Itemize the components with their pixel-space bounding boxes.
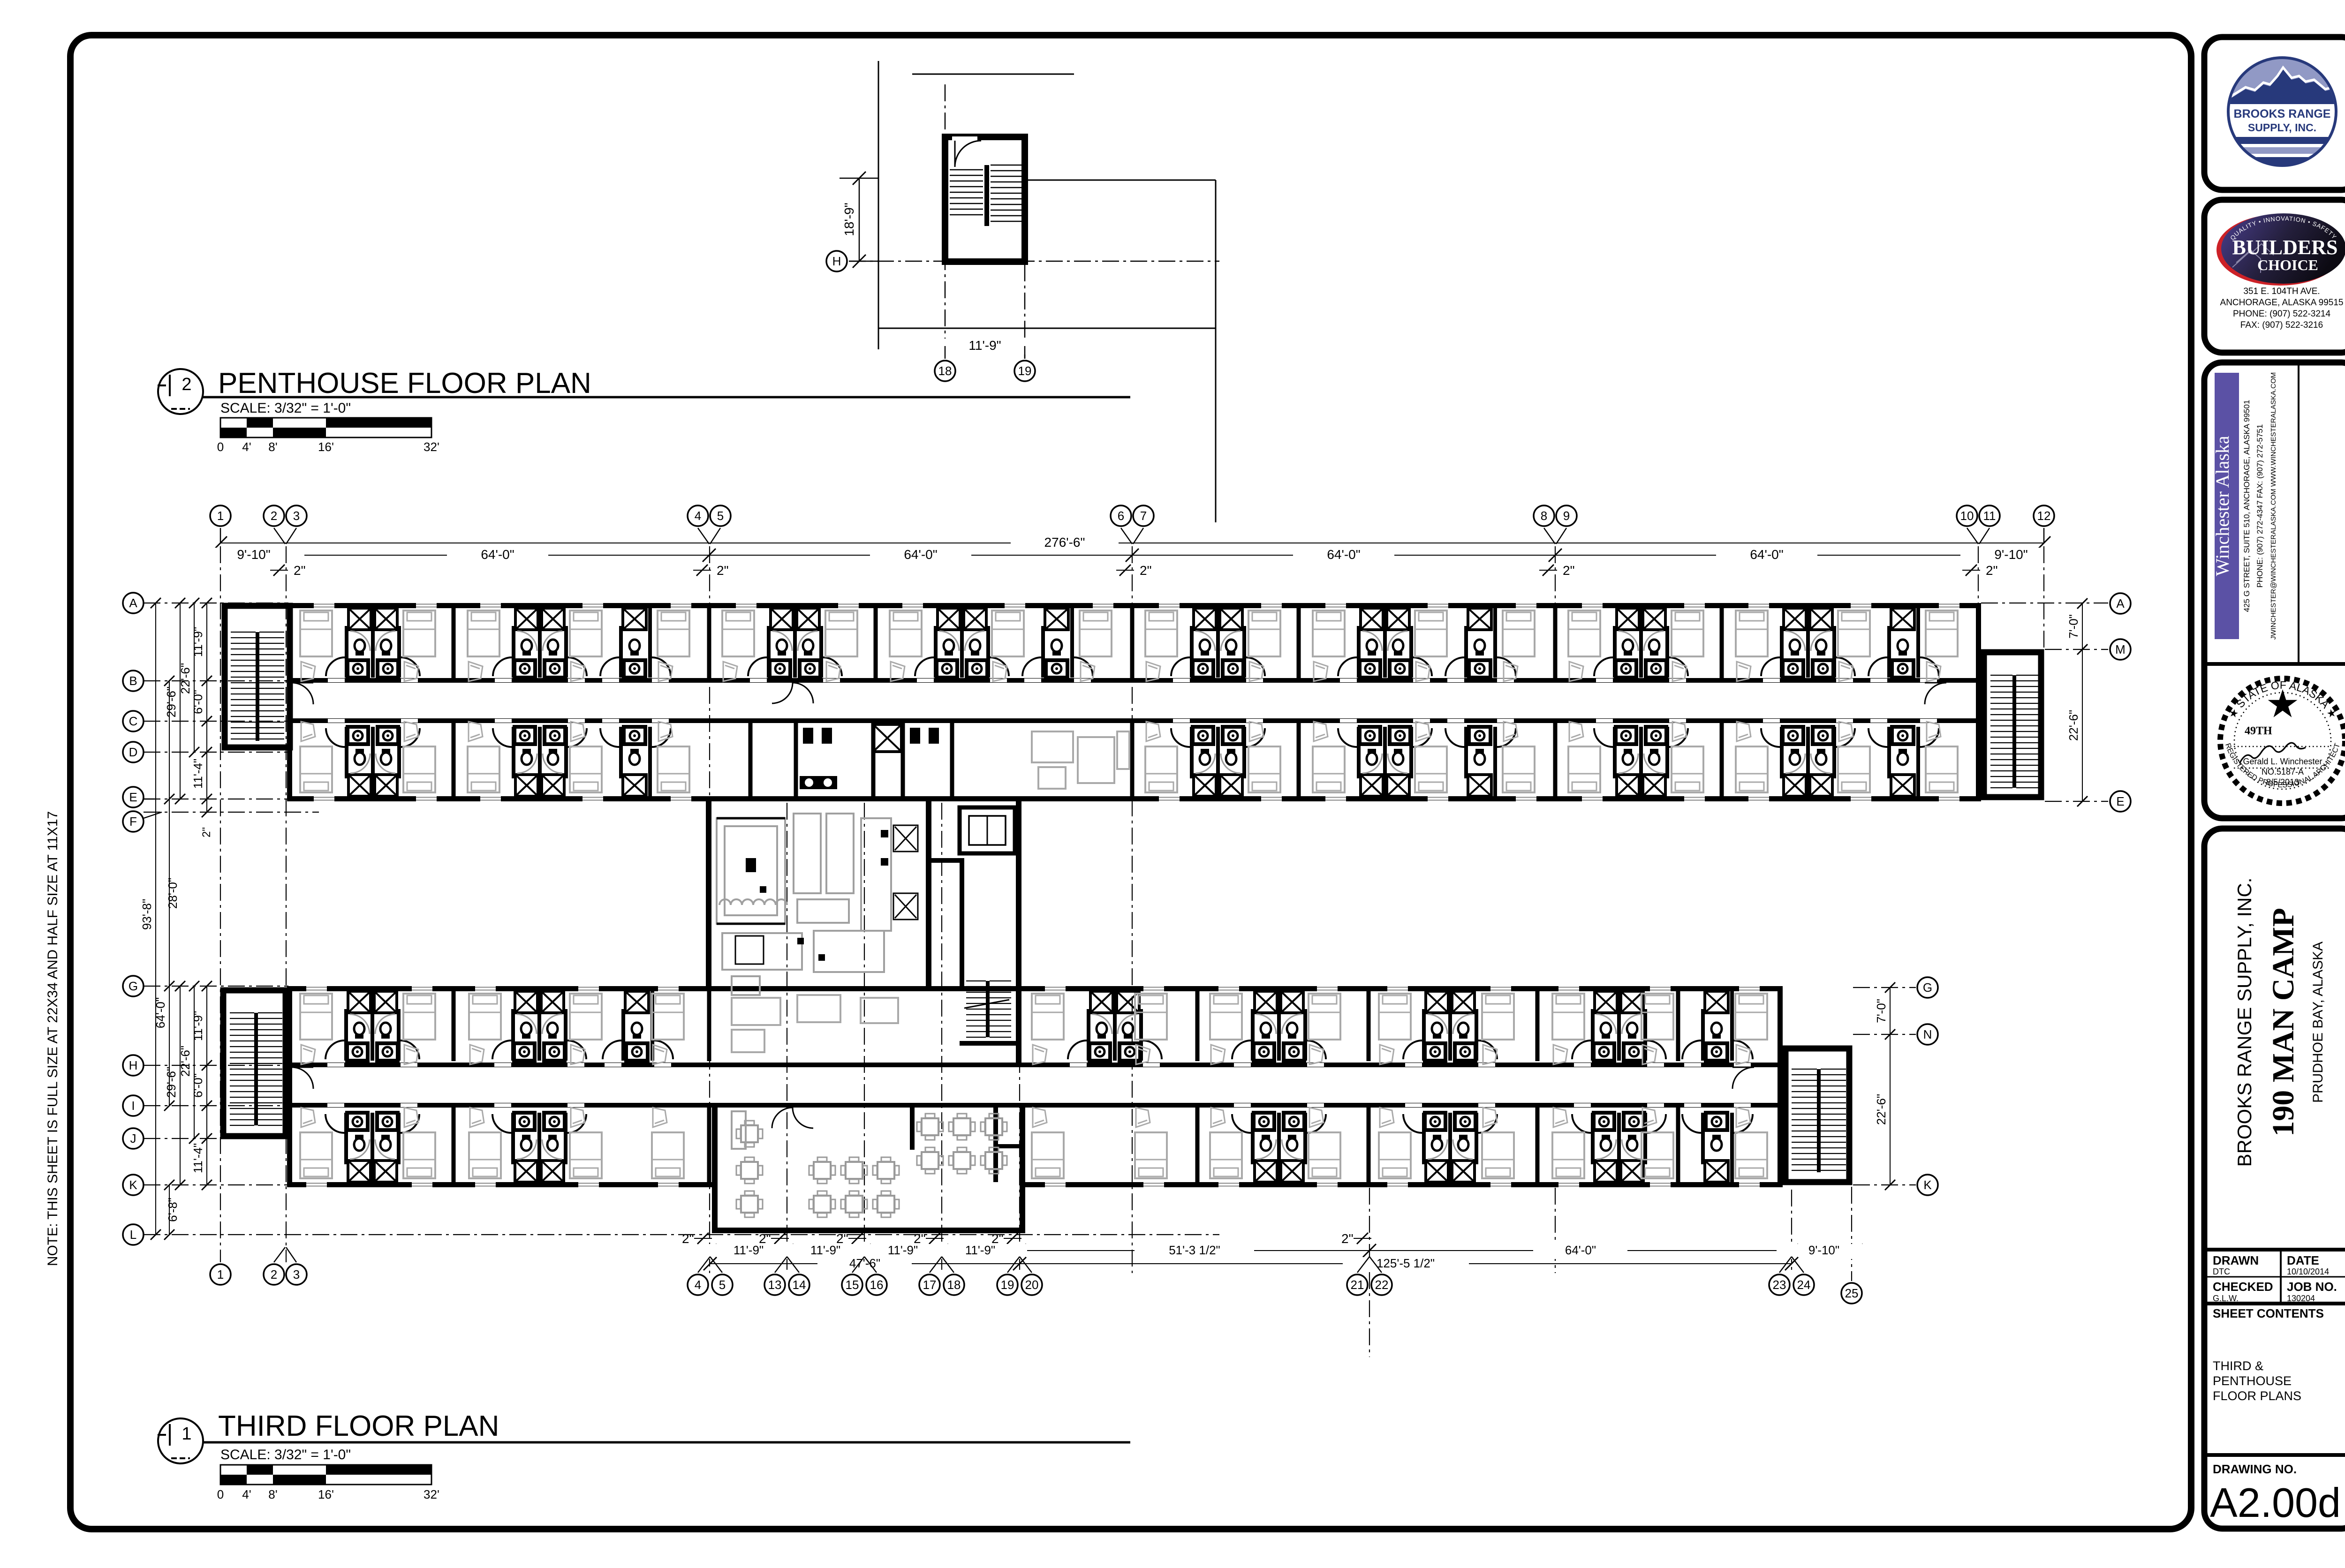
svg-text:11: 11 <box>1983 509 1996 523</box>
svg-text:M: M <box>2115 642 2126 656</box>
svg-text:7'-0": 7'-0" <box>2066 614 2080 639</box>
svg-text:BROOKS RANGE: BROOKS RANGE <box>2234 107 2331 121</box>
svg-text:2": 2" <box>1140 563 1152 578</box>
svg-text:FLOOR PLANS: FLOOR PLANS <box>2213 1389 2301 1403</box>
svg-text:2": 2" <box>1563 563 1575 578</box>
svg-text:17: 17 <box>923 1278 937 1292</box>
svg-text:10/10/2014: 10/10/2014 <box>2287 1267 2329 1276</box>
svg-text:64'-0": 64'-0" <box>1750 547 1783 562</box>
svg-text:125'-5 1/2": 125'-5 1/2" <box>1377 1256 1435 1270</box>
svg-text:11'-4": 11'-4" <box>191 1143 205 1173</box>
svg-text:E: E <box>2116 794 2124 808</box>
svg-text:BUILDERS: BUILDERS <box>2232 236 2338 259</box>
svg-text:Winchester Alaska: Winchester Alaska <box>2212 436 2233 576</box>
svg-text:22'-6": 22'-6" <box>1874 1094 1888 1125</box>
svg-text:1: 1 <box>182 1424 191 1444</box>
svg-text:23: 23 <box>1773 1278 1786 1292</box>
svg-text:32': 32' <box>424 1487 439 1501</box>
svg-text:PENTHOUSE FLOOR PLAN: PENTHOUSE FLOOR PLAN <box>218 367 591 400</box>
svg-text:49TH: 49TH <box>2245 725 2272 737</box>
svg-text:3: 3 <box>293 1267 300 1282</box>
svg-text:E: E <box>129 790 137 804</box>
svg-text:DTC: DTC <box>2213 1267 2230 1276</box>
svg-text:15: 15 <box>846 1278 859 1292</box>
svg-text:SCALE: 3/32" = 1'-0": SCALE: 3/32" = 1'-0" <box>220 1447 351 1462</box>
svg-text:29'-6": 29'-6" <box>164 686 178 717</box>
svg-text:PHONE: (907) 272-4347 F: PHONE: (907) 272-4347 FAX: (907) 272-575… <box>2255 424 2264 588</box>
svg-text:SCALE: 3/32" = 1'-0": SCALE: 3/32" = 1'-0" <box>220 400 351 416</box>
svg-text:CHOICE: CHOICE <box>2257 256 2318 273</box>
svg-text:64'-0": 64'-0" <box>1565 1243 1596 1257</box>
svg-text:2: 2 <box>271 509 277 523</box>
svg-text:8': 8' <box>268 1487 277 1501</box>
svg-text:THIRD &: THIRD & <box>2213 1359 2263 1373</box>
svg-text:51'-3 1/2": 51'-3 1/2" <box>1169 1243 1220 1257</box>
svg-text:20: 20 <box>1025 1278 1039 1292</box>
svg-text:G: G <box>129 979 138 993</box>
svg-text:4: 4 <box>695 1278 701 1292</box>
svg-text:19: 19 <box>1018 364 1032 378</box>
svg-text:0: 0 <box>217 1487 224 1501</box>
svg-text:64'-0": 64'-0" <box>1327 547 1360 562</box>
svg-text:PRUDHOE BAY, ALASKA: PRUDHOE BAY, ALASKA <box>2310 942 2326 1103</box>
svg-text:64'-0": 64'-0" <box>481 547 514 562</box>
svg-text:BROOKS RANGE SUPPLY, INC.: BROOKS RANGE SUPPLY, INC. <box>2233 878 2255 1167</box>
svg-text:JWINCHESTER@WINCHESTERALASKA.C: JWINCHESTER@WINCHESTERALASKA.COM WWW.WIN… <box>2269 372 2277 640</box>
svg-text:ANCHORAGE, ALASKA 99515: ANCHORAGE, ALASKA 99515 <box>2220 298 2344 308</box>
svg-text:19: 19 <box>1001 1278 1014 1292</box>
svg-text:8: 8 <box>1541 509 1547 523</box>
svg-text:11'-9": 11'-9" <box>191 1011 205 1041</box>
svg-text:130204: 130204 <box>2287 1294 2315 1303</box>
svg-text:32': 32' <box>424 440 439 454</box>
svg-text:25: 25 <box>1845 1286 1859 1300</box>
svg-text:9: 9 <box>1563 509 1570 523</box>
svg-text:18: 18 <box>938 364 952 378</box>
svg-text:F: F <box>129 814 137 829</box>
svg-text:G: G <box>1923 980 1932 995</box>
svg-text:DRAWING NO.: DRAWING NO. <box>2213 1462 2297 1476</box>
svg-text:6: 6 <box>1118 509 1124 523</box>
svg-text:J: J <box>130 1131 136 1146</box>
svg-text:16': 16' <box>318 1487 334 1501</box>
svg-text:A2.00d: A2.00d <box>2210 1479 2341 1526</box>
svg-text:12: 12 <box>2037 509 2051 523</box>
svg-text:11'-9": 11'-9" <box>888 1243 918 1257</box>
svg-text:SUPPLY, INC.: SUPPLY, INC. <box>2248 121 2316 134</box>
svg-text:1: 1 <box>217 509 224 523</box>
svg-text:4': 4' <box>242 440 251 454</box>
svg-text:K: K <box>1923 1178 1932 1192</box>
svg-text:SHEET CONTENTS: SHEET CONTENTS <box>2213 1306 2324 1320</box>
svg-text:28'-0": 28'-0" <box>166 878 180 909</box>
svg-text:11'-9": 11'-9" <box>965 1243 995 1257</box>
svg-text:4: 4 <box>695 509 701 523</box>
svg-text:FAX: (907) 522-3216: FAX: (907) 522-3216 <box>2240 320 2323 330</box>
svg-text:9'-10": 9'-10" <box>237 547 270 562</box>
svg-text:CHECKED: CHECKED <box>2213 1280 2273 1294</box>
svg-text:13: 13 <box>768 1278 782 1292</box>
svg-text:6'-0": 6'-0" <box>191 690 205 714</box>
svg-text:22'-6": 22'-6" <box>2066 710 2080 741</box>
svg-text:6'-8": 6'-8" <box>166 1198 180 1222</box>
svg-text:29'-6": 29'-6" <box>164 1067 178 1098</box>
svg-text:JOB NO.: JOB NO. <box>2287 1280 2337 1294</box>
svg-text:1: 1 <box>217 1267 224 1282</box>
svg-text:351 E. 104TH AVE.: 351 E. 104TH AVE. <box>2243 286 2320 296</box>
svg-text:C: C <box>129 714 138 728</box>
svg-text:14: 14 <box>793 1278 806 1292</box>
svg-text:11'-9": 11'-9" <box>191 627 205 657</box>
svg-text:Gerald L. Winchester: Gerald L. Winchester <box>2243 757 2322 766</box>
svg-text:NO.5187-A: NO.5187-A <box>2262 767 2304 776</box>
svg-text:G.L.W.: G.L.W. <box>2213 1294 2239 1303</box>
svg-text:L: L <box>130 1228 136 1242</box>
svg-text:18: 18 <box>947 1278 961 1292</box>
svg-text:9'-10": 9'-10" <box>1808 1243 1839 1257</box>
svg-text:PHONE: (907) 522-3214: PHONE: (907) 522-3214 <box>2233 309 2330 319</box>
svg-text:K: K <box>129 1178 137 1192</box>
svg-text:H: H <box>129 1058 138 1072</box>
svg-text:2": 2" <box>1986 563 1998 578</box>
svg-text:2": 2" <box>294 563 306 578</box>
svg-text:2": 2" <box>1341 1231 1354 1246</box>
svg-text:2: 2 <box>182 375 191 394</box>
svg-text:DATE: DATE <box>2287 1253 2319 1267</box>
svg-text:8': 8' <box>268 440 277 454</box>
svg-text:D: D <box>129 745 138 759</box>
svg-text:DRAWN: DRAWN <box>2213 1253 2259 1267</box>
svg-text:0: 0 <box>217 440 224 454</box>
svg-text:93'-8": 93'-8" <box>140 899 154 930</box>
svg-text:5: 5 <box>719 1278 726 1292</box>
svg-text:N: N <box>1923 1027 1932 1041</box>
svg-text:6'-0": 6'-0" <box>191 1073 205 1098</box>
svg-text:47'-6": 47'-6" <box>849 1256 880 1270</box>
svg-text:9'-10": 9'-10" <box>1994 547 2027 562</box>
svg-text:425 G STREET, SUITE 510, ANCHO: 425 G STREET, SUITE 510, ANCHORAGE, ALAS… <box>2242 400 2251 612</box>
svg-text:11'-4": 11'-4" <box>191 759 205 789</box>
svg-text:18'-9": 18'-9" <box>842 203 856 236</box>
svg-text:16': 16' <box>318 440 334 454</box>
svg-text:4': 4' <box>242 1487 251 1501</box>
svg-text:190 MAN CAMP: 190 MAN CAMP <box>2266 908 2300 1137</box>
svg-text:3: 3 <box>293 509 300 523</box>
svg-text:276'-6": 276'-6" <box>1044 535 1085 550</box>
svg-text:THIRD FLOOR PLAN: THIRD FLOOR PLAN <box>218 1410 499 1442</box>
svg-text:2": 2" <box>682 1231 694 1246</box>
svg-text:11'-9": 11'-9" <box>734 1243 764 1257</box>
svg-text:24: 24 <box>1797 1278 1811 1292</box>
svg-text:2": 2" <box>200 827 213 837</box>
svg-text:11'-9": 11'-9" <box>968 338 1001 353</box>
svg-text:22: 22 <box>1375 1278 1389 1292</box>
svg-text:21: 21 <box>1351 1278 1364 1292</box>
svg-text:I: I <box>131 1099 135 1113</box>
svg-text:B: B <box>129 674 137 688</box>
svg-text:2: 2 <box>271 1267 277 1282</box>
svg-text:PENTHOUSE: PENTHOUSE <box>2213 1374 2292 1388</box>
svg-text:2": 2" <box>717 563 729 578</box>
svg-text:5: 5 <box>717 509 724 523</box>
svg-text:8/5/2013: 8/5/2013 <box>2266 777 2299 787</box>
svg-text:NOTE: THIS SHEET IS FULL SIZE: NOTE: THIS SHEET IS FULL SIZE AT 22X34 A… <box>45 811 61 1266</box>
svg-text:64'-0": 64'-0" <box>904 547 937 562</box>
svg-text:11'-9": 11'-9" <box>810 1243 840 1257</box>
svg-text:A: A <box>2116 596 2125 611</box>
svg-text:16: 16 <box>870 1278 884 1292</box>
svg-text:7: 7 <box>1140 509 1147 523</box>
svg-text:H: H <box>832 254 841 268</box>
svg-text:10: 10 <box>1960 509 1974 523</box>
svg-text:A: A <box>129 596 137 610</box>
svg-text:7'-0": 7'-0" <box>1874 999 1888 1023</box>
